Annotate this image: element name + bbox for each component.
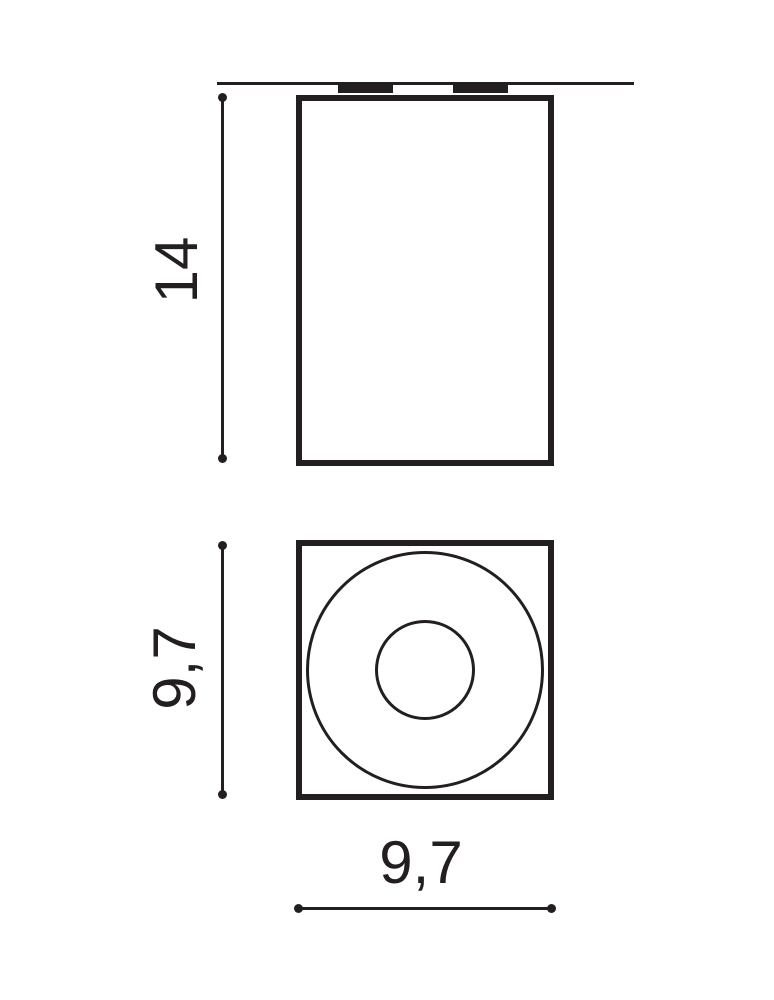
side-dimension-line	[221, 545, 224, 795]
ceiling-line	[217, 82, 634, 85]
mounting-tab-right	[453, 82, 508, 93]
dimension-endpoint-dot	[547, 904, 556, 913]
height-dimension-line	[221, 97, 224, 459]
dimension-endpoint-dot	[218, 790, 227, 799]
lamp-body-front-view	[296, 95, 554, 466]
dimension-endpoint-dot	[294, 904, 303, 913]
dimension-endpoint-dot	[218, 541, 227, 550]
lamp-inner-circle	[375, 620, 475, 720]
dimension-endpoint-dot	[218, 93, 227, 102]
width-dimension-label: 9,7	[379, 833, 462, 893]
dimension-drawing-canvas: 14 9,7 9,7	[0, 0, 774, 1000]
mounting-tab-left	[338, 82, 393, 93]
side-dimension-label: 9,7	[145, 626, 205, 709]
width-dimension-line	[298, 907, 552, 910]
height-dimension-label: 14	[147, 237, 207, 304]
dimension-endpoint-dot	[218, 454, 227, 463]
